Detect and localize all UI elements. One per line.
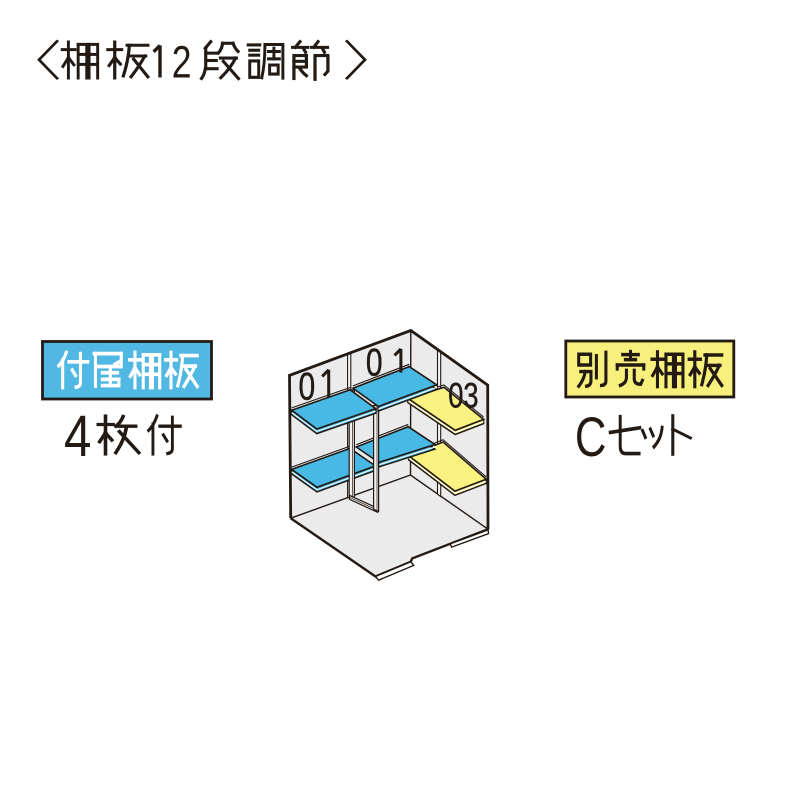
- svg-text:0: 0: [366, 342, 383, 384]
- svg-text:2: 2: [172, 36, 192, 87]
- svg-text:0: 0: [299, 366, 316, 408]
- svg-text:C: C: [575, 406, 607, 468]
- svg-text:4: 4: [64, 404, 91, 469]
- svg-text:03: 03: [448, 376, 478, 415]
